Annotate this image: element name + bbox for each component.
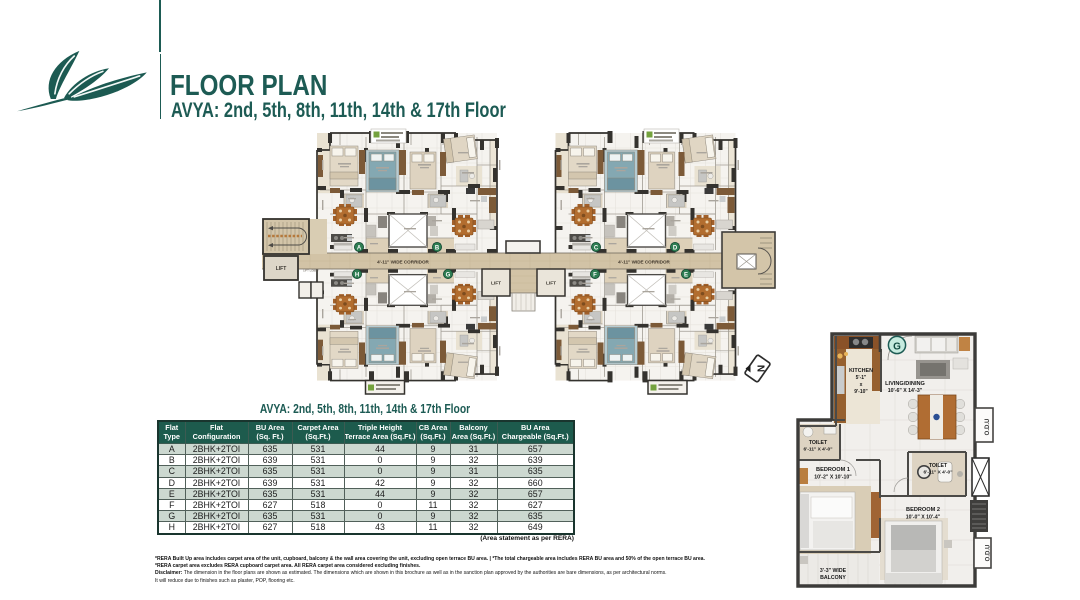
svg-text:G: G (893, 341, 901, 352)
svg-text:O.D.U: O.D.U (985, 419, 991, 436)
svg-text:E: E (684, 272, 688, 278)
svg-text:B: B (435, 245, 440, 251)
svg-text:9'-10": 9'-10" (854, 389, 868, 395)
svg-text:LIFT: LIFT (546, 281, 556, 287)
svg-text:O.D.U: O.D.U (986, 545, 992, 562)
svg-text:6'-11" X 4'-0": 6'-11" X 4'-0" (924, 470, 953, 476)
svg-text:LIVING/DINING: LIVING/DINING (885, 381, 925, 387)
svg-text:3'-3" WIDE: 3'-3" WIDE (820, 568, 847, 574)
svg-text:H: H (355, 272, 359, 278)
svg-text:x: x (860, 382, 863, 388)
svg-text:6'-11" X 4'-0": 6'-11" X 4'-0" (804, 447, 833, 453)
svg-text:10'-0" X 10'-4": 10'-0" X 10'-4" (906, 515, 941, 521)
svg-text:A: A (357, 245, 362, 251)
svg-text:LIFT LOBBY: LIFT LOBBY (303, 269, 319, 273)
svg-text:BEDROOM 1: BEDROOM 1 (816, 467, 850, 473)
svg-text:LIFT: LIFT (276, 266, 287, 272)
svg-text:F: F (593, 272, 597, 278)
svg-text:N: N (755, 365, 766, 372)
svg-text:LIFT: LIFT (491, 281, 501, 287)
svg-text:TOILET: TOILET (809, 440, 828, 446)
svg-text:D: D (673, 245, 678, 251)
svg-text:4'-11" WIDE CORRIDOR: 4'-11" WIDE CORRIDOR (618, 260, 670, 265)
svg-text:TOILET: TOILET (929, 463, 948, 469)
svg-text:4'-11" WIDE CORRIDOR: 4'-11" WIDE CORRIDOR (377, 260, 429, 265)
svg-text:BEDROOM 2: BEDROOM 2 (906, 507, 940, 513)
svg-text:10'-2" X 10'-10": 10'-2" X 10'-10" (814, 475, 852, 481)
svg-text:C: C (594, 245, 599, 251)
svg-text:KITCHEN: KITCHEN (849, 368, 873, 374)
svg-text:G: G (446, 272, 451, 278)
svg-text:BALCONY: BALCONY (820, 575, 846, 581)
svg-text:10'-6" X 14'-3": 10'-6" X 14'-3" (888, 388, 923, 394)
svg-text:5'-1": 5'-1" (856, 375, 867, 381)
